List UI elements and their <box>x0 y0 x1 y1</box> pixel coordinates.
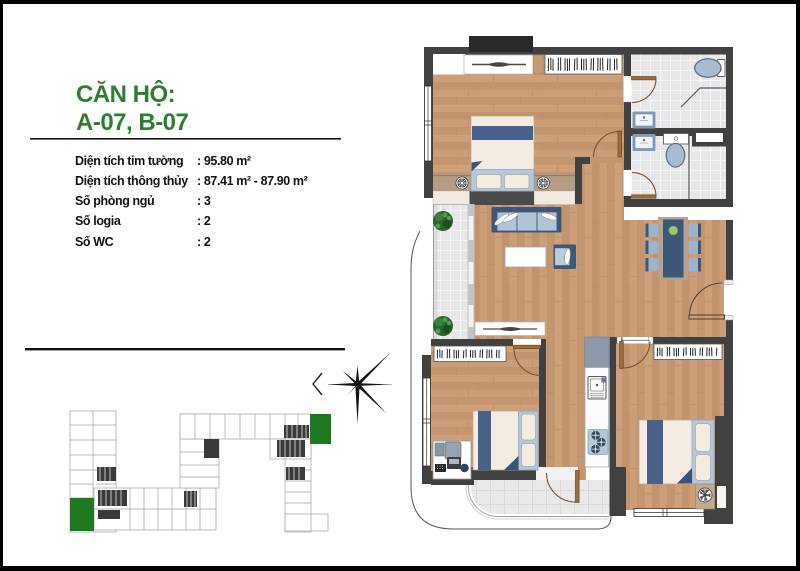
svg-text:: 87.41 m² - 87.90 m²: : 87.41 m² - 87.90 m² <box>197 174 308 188</box>
svg-text:Diện tích tim tường: Diện tích tim tường <box>75 154 183 168</box>
svg-text:Số WC: Số WC <box>75 235 114 249</box>
svg-text:A-07, B-07: A-07, B-07 <box>76 109 189 136</box>
svg-text:Số logia: Số logia <box>75 214 122 228</box>
svg-text:: 95.80 m²: : 95.80 m² <box>197 154 251 168</box>
svg-text:Số phòng ngủ: Số phòng ngủ <box>75 194 154 208</box>
svg-text:: 2: : 2 <box>197 214 211 228</box>
svg-text:: 3: : 3 <box>197 194 211 208</box>
svg-text:CĂN HỘ:: CĂN HỘ: <box>76 80 175 108</box>
svg-text:Diện tích thông thủy: Diện tích thông thủy <box>75 174 188 188</box>
svg-text:: 2: : 2 <box>197 235 211 249</box>
